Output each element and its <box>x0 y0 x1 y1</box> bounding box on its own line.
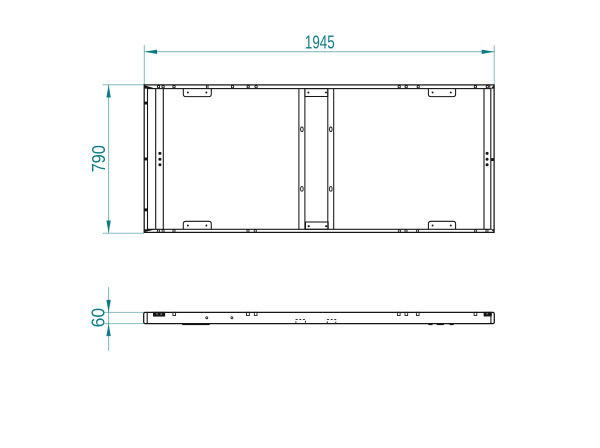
svg-text:1945: 1945 <box>305 32 335 53</box>
svg-text:60: 60 <box>88 308 109 327</box>
svg-text:790: 790 <box>88 145 109 173</box>
